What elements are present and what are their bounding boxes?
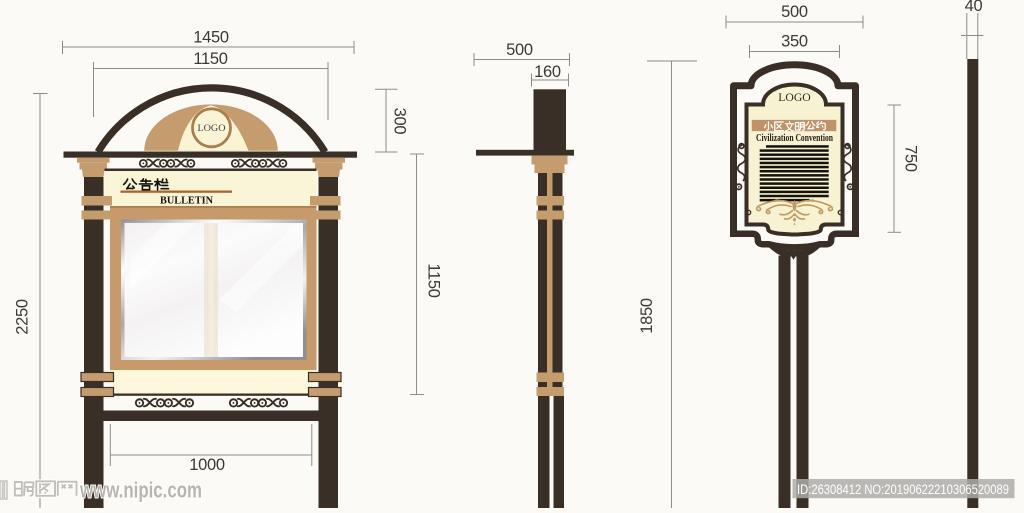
svg-text:1000: 1000 [189,456,225,474]
svg-text:1150: 1150 [425,263,443,297]
svg-text:1150: 1150 [193,50,227,68]
svg-text:500: 500 [781,3,808,21]
svg-text:Civilization Convention: Civilization Convention [756,133,833,144]
svg-text:300: 300 [391,108,409,135]
svg-text:LOGO: LOGO [198,124,226,134]
svg-text:1850: 1850 [638,298,656,334]
svg-text:2250: 2250 [14,299,32,335]
svg-text:1450: 1450 [193,29,229,47]
svg-text:www.nipic.com: www.nipic.com [79,478,202,503]
svg-text:500: 500 [506,41,533,59]
svg-text:ID:26308412 NO:201906222103065: ID:26308412 NO:20190622210306520089 [797,482,1009,497]
svg-text:BULLETIN: BULLETIN [160,196,214,207]
svg-text:LOGO: LOGO [778,92,811,104]
svg-text:750: 750 [902,145,920,172]
svg-text:160: 160 [534,63,561,81]
svg-text:350: 350 [781,33,808,51]
svg-text:40: 40 [965,0,983,15]
